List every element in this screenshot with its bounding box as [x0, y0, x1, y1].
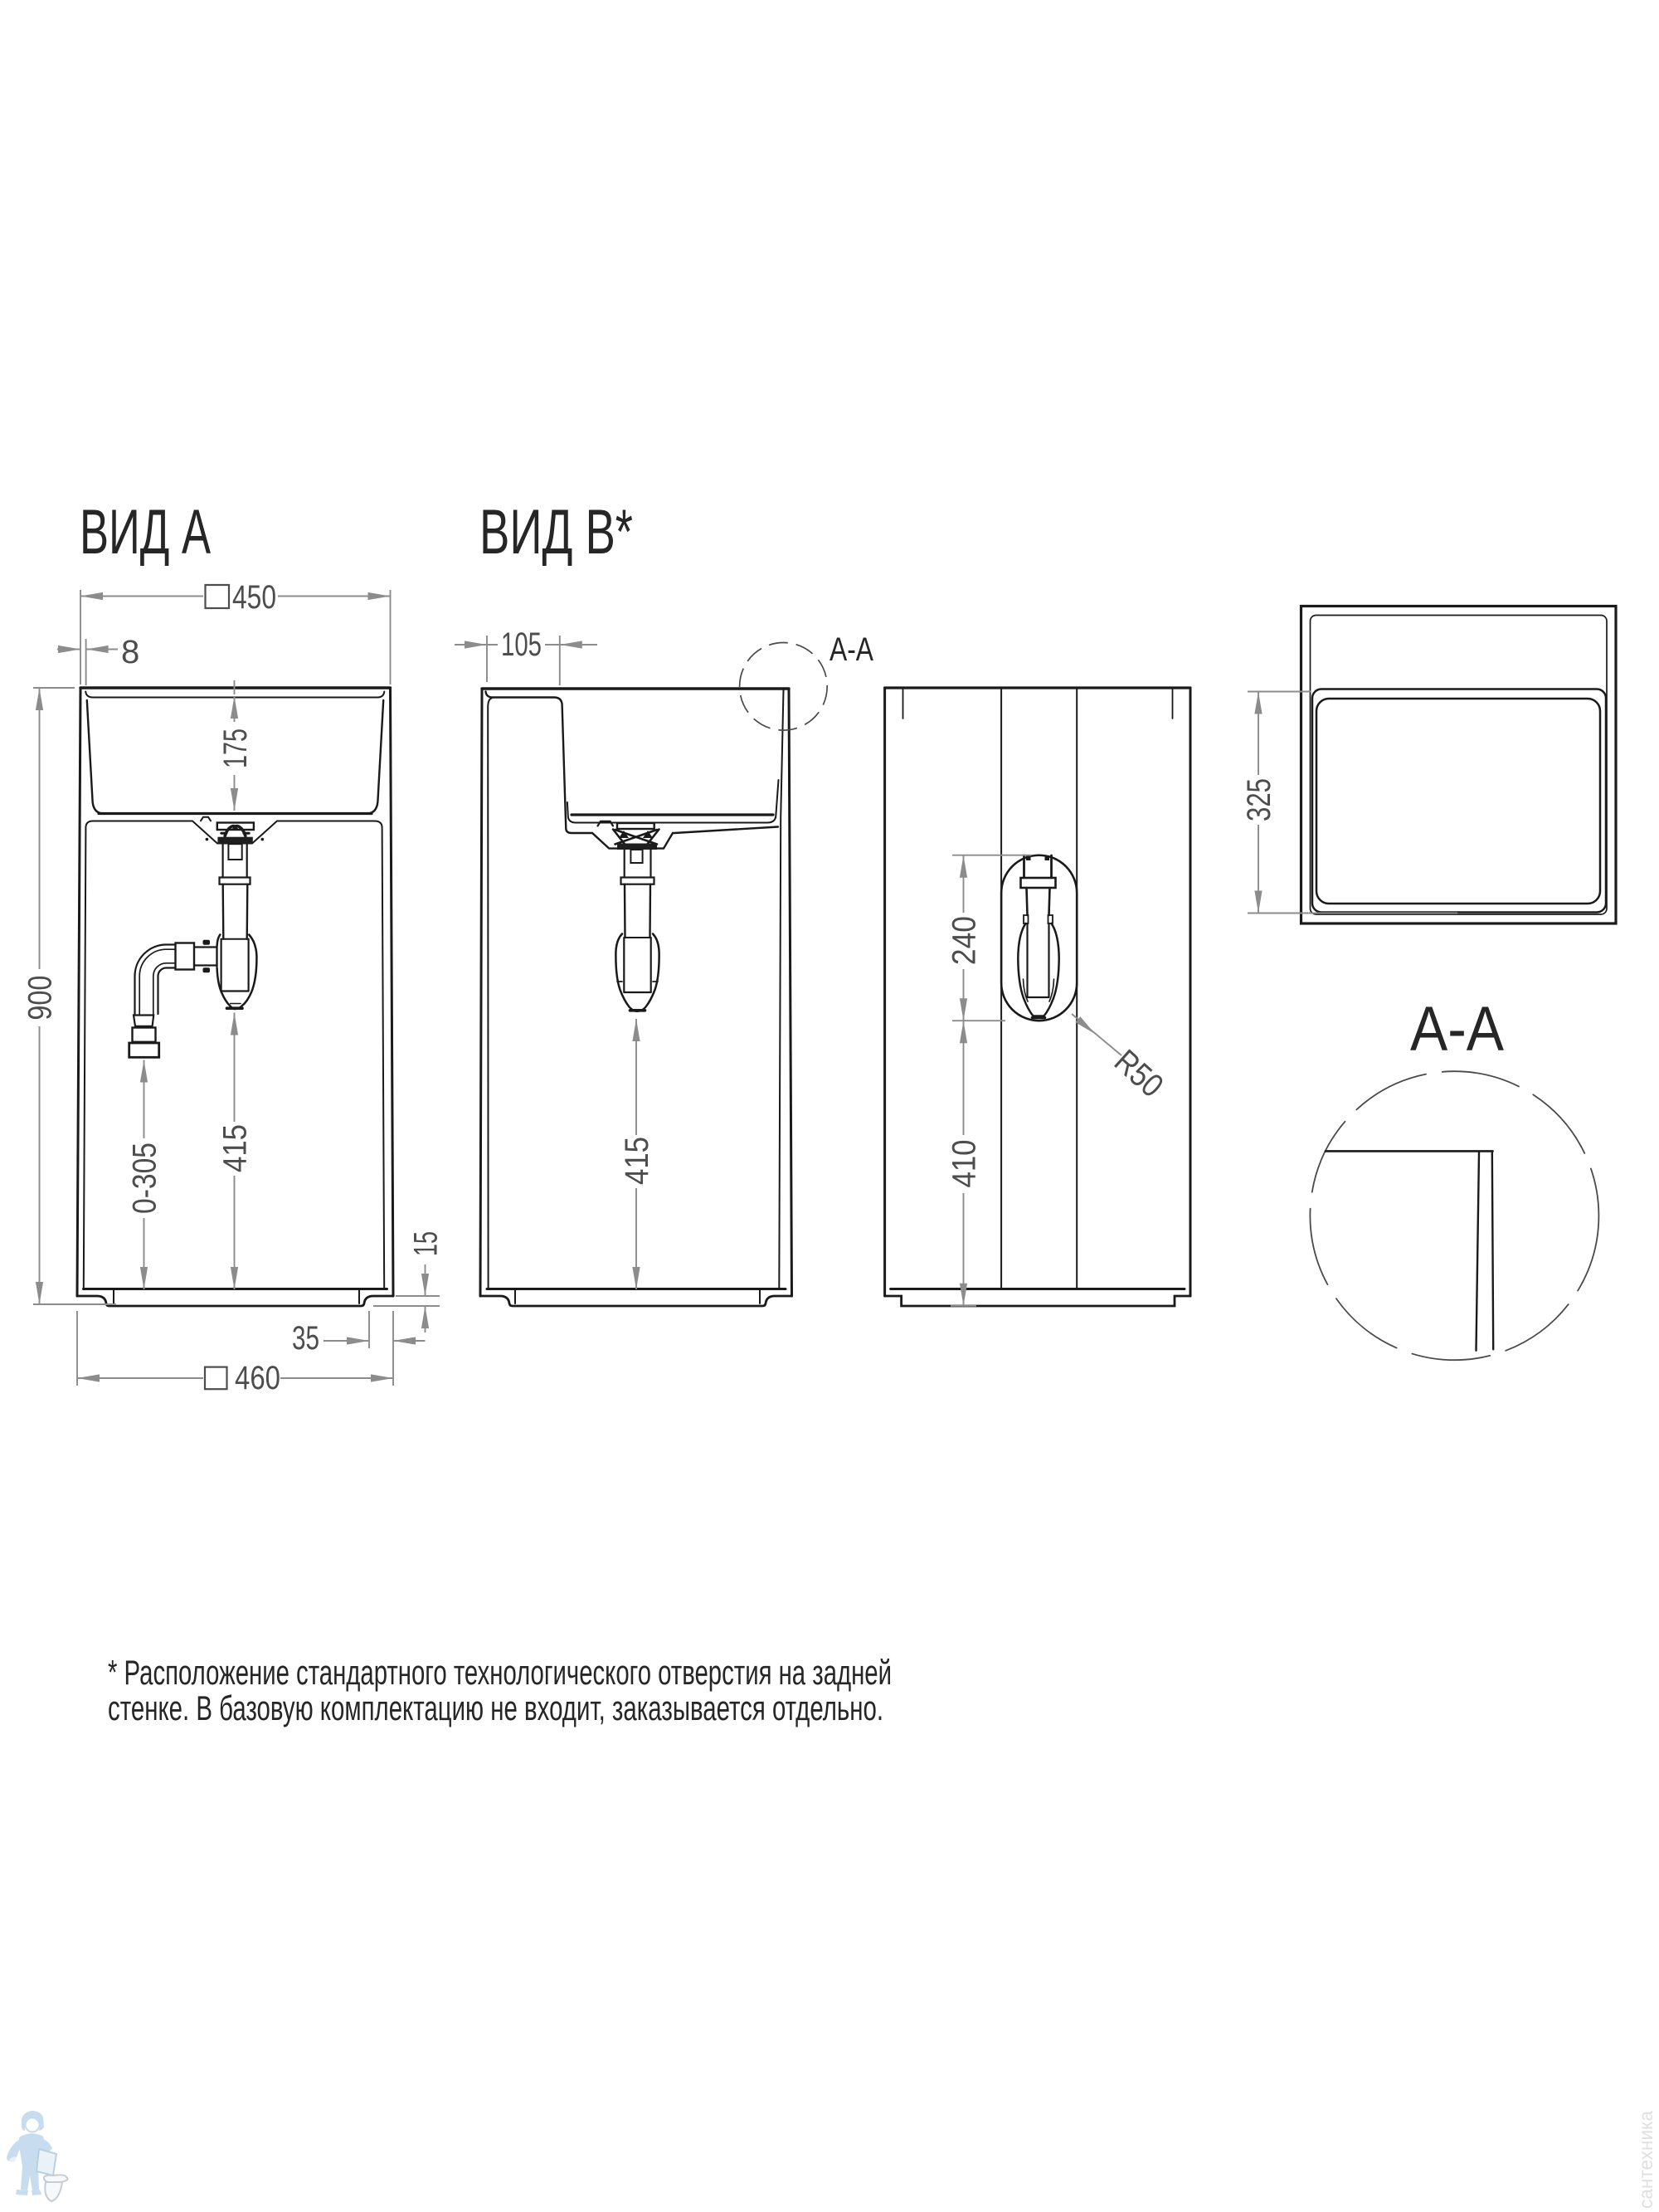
svg-text:35: 35	[292, 1320, 319, 1357]
svg-text:415: 415	[217, 1124, 254, 1172]
svg-text:175: 175	[217, 728, 254, 768]
svg-text:8: 8	[121, 634, 139, 670]
svg-text:сантехника: сантехника	[1635, 2111, 1657, 2209]
svg-text:410: 410	[946, 1140, 983, 1188]
svg-text:ВИД B*: ВИД B*	[479, 497, 633, 568]
svg-text:стенке. В базовую комплектацию: стенке. В базовую комплектацию не входит…	[108, 1688, 883, 1727]
svg-text:0-305: 0-305	[127, 1143, 163, 1214]
svg-text:A-A: A-A	[829, 631, 873, 668]
svg-text:325: 325	[1241, 778, 1277, 821]
svg-text:900: 900	[22, 976, 59, 1021]
svg-text:105: 105	[501, 626, 542, 663]
svg-text:* Расположение стандартного те: * Расположение стандартного технологичес…	[108, 1653, 892, 1692]
svg-text:450: 450	[232, 579, 276, 616]
svg-text:15: 15	[408, 1231, 445, 1256]
svg-text:460: 460	[235, 1360, 280, 1396]
svg-text:415: 415	[619, 1137, 655, 1185]
svg-text:240: 240	[946, 916, 983, 965]
svg-text:ВИД А: ВИД А	[80, 497, 211, 568]
svg-text:A-A: A-A	[1410, 994, 1504, 1065]
